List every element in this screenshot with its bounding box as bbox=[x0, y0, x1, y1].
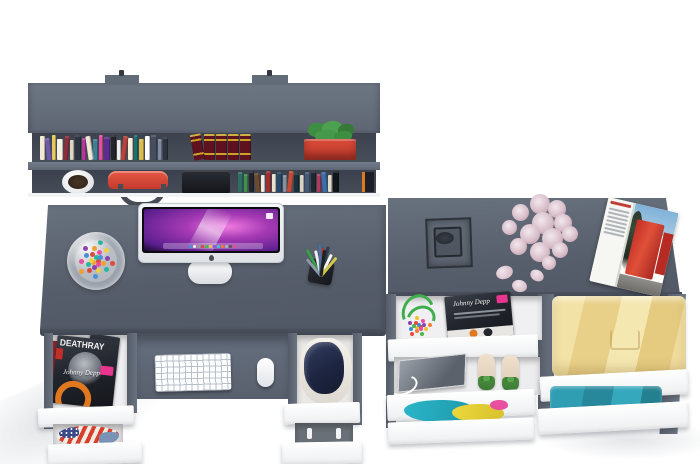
room-scene: DEATHRAY Johnny Depp bbox=[0, 0, 700, 464]
imac-chin bbox=[142, 254, 280, 261]
bead-necklace bbox=[398, 296, 440, 342]
apple-logo-icon bbox=[209, 255, 214, 261]
imac bbox=[138, 203, 284, 263]
imac-window-icon bbox=[266, 213, 273, 219]
left-drawer-open-top: DEATHRAY Johnny Depp bbox=[53, 335, 127, 411]
necklace-beads bbox=[400, 314, 438, 340]
apple-keyboard bbox=[155, 353, 232, 392]
imac-stand bbox=[188, 261, 232, 284]
upper-book-row bbox=[40, 135, 190, 160]
right-drawer-front-2 bbox=[282, 441, 362, 464]
cover-subtitle: Johnny Depp bbox=[63, 368, 100, 377]
left-drawer-front-2 bbox=[48, 441, 143, 464]
left-pedestal-divider bbox=[127, 333, 137, 413]
apple-mouse bbox=[257, 358, 274, 387]
book-heading-line bbox=[610, 201, 631, 209]
pen-cup bbox=[300, 228, 342, 290]
encyclopedia-set bbox=[192, 134, 251, 160]
lower-book-row bbox=[238, 171, 368, 192]
yellow-folded-pants bbox=[552, 296, 686, 376]
shelf-bottom-edge bbox=[28, 193, 380, 197]
magazine-drawer-title: Johnny Depp bbox=[453, 297, 491, 308]
imac-dock bbox=[163, 243, 263, 249]
shelf-middle-panel bbox=[28, 162, 380, 170]
plant-bowl bbox=[62, 170, 94, 194]
right-drawer-front-1 bbox=[284, 402, 361, 425]
imac-screen bbox=[144, 209, 278, 251]
pants-pocket bbox=[610, 330, 640, 350]
shelf-lower-compartment bbox=[32, 170, 376, 193]
pink-scarf-bit bbox=[490, 400, 508, 410]
magazine-masthead: DEATHRAY bbox=[59, 337, 112, 352]
navy-garment bbox=[304, 342, 344, 394]
cover-pink-badge bbox=[100, 366, 114, 376]
shelf-upper-compartment bbox=[32, 133, 376, 162]
green-shoe-left bbox=[478, 354, 495, 390]
candy-jar-contents bbox=[75, 240, 117, 282]
black-speaker bbox=[182, 170, 230, 194]
shelf-mount-knob-left bbox=[119, 70, 124, 76]
drawer-hook bbox=[336, 428, 341, 439]
shelf-mount-knob-right bbox=[267, 70, 272, 76]
plant-bowl-soil bbox=[68, 175, 88, 189]
glass-cube bbox=[425, 217, 473, 269]
keyboard-tray bbox=[133, 333, 291, 399]
magazine-pink-badge bbox=[496, 294, 508, 303]
candy-jar bbox=[67, 232, 125, 290]
imac-bezel bbox=[142, 207, 280, 253]
drawer-hook bbox=[307, 428, 312, 439]
flag-shirt-stars bbox=[59, 427, 79, 438]
cover-red-tab bbox=[55, 348, 63, 360]
navy-clothes bbox=[300, 338, 352, 404]
dresser-front-3 bbox=[388, 417, 535, 444]
bookend bbox=[362, 172, 374, 192]
roses-bouquet bbox=[500, 192, 592, 278]
green-shoe-right bbox=[502, 355, 519, 391]
magazine-deathray: DEATHRAY Johnny Depp bbox=[53, 335, 119, 409]
wall-shelf bbox=[28, 83, 380, 197]
planter-box bbox=[304, 139, 356, 160]
magazine-drawer: Johnny Depp bbox=[444, 291, 514, 341]
